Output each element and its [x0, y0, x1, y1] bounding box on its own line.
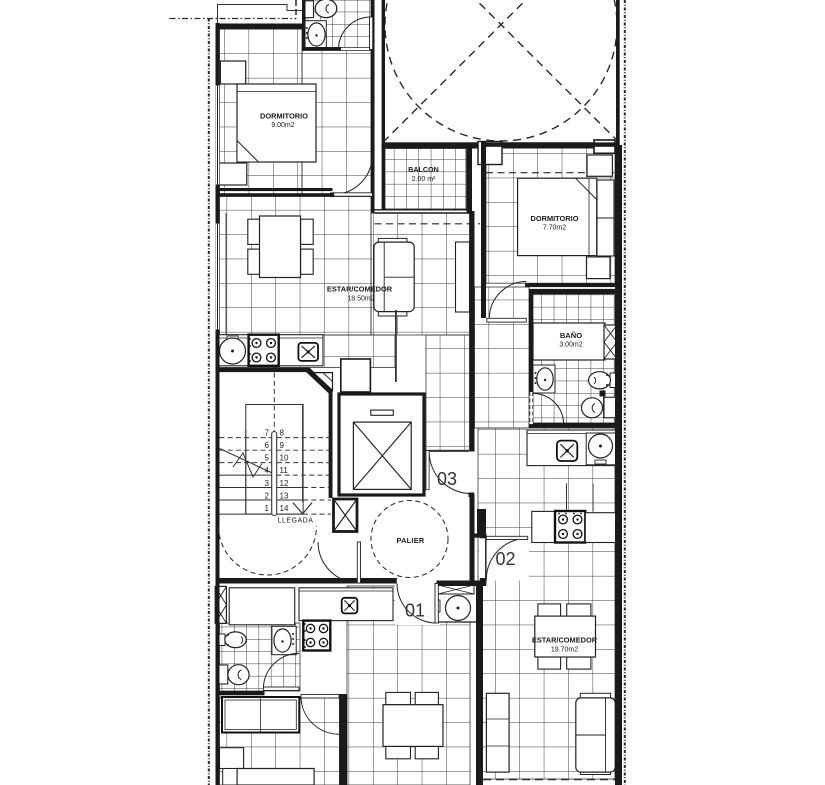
svg-text:ESTAR/COMEDOR: ESTAR/COMEDOR [327, 285, 393, 294]
svg-text:BALCON: BALCON [408, 165, 439, 174]
svg-text:LLEGADA: LLEGADA [278, 518, 314, 525]
svg-text:11: 11 [280, 466, 289, 475]
svg-text:BAÑO: BAÑO [560, 331, 582, 340]
svg-text:19.70m2: 19.70m2 [551, 647, 578, 654]
svg-text:6: 6 [265, 441, 270, 450]
svg-text:2.00 m²: 2.00 m² [412, 176, 436, 183]
svg-text:03: 03 [437, 469, 457, 489]
svg-text:18.50m2: 18.50m2 [347, 296, 374, 303]
svg-text:9.00m2: 9.00m2 [271, 122, 294, 129]
svg-text:8: 8 [280, 429, 285, 438]
svg-text:7.70m2: 7.70m2 [543, 225, 566, 232]
svg-text:7: 7 [265, 429, 270, 438]
svg-text:12: 12 [280, 479, 289, 488]
svg-text:DORMITORIO: DORMITORIO [260, 112, 308, 121]
svg-text:3.00m2: 3.00m2 [559, 342, 582, 349]
svg-text:14: 14 [280, 504, 289, 513]
svg-text:3: 3 [265, 479, 270, 488]
svg-text:2: 2 [265, 491, 270, 500]
svg-text:4: 4 [265, 466, 270, 475]
svg-text:9: 9 [280, 441, 285, 450]
svg-text:5: 5 [265, 454, 270, 463]
svg-text:ESTAR/COMEDOR: ESTAR/COMEDOR [532, 636, 598, 645]
svg-text:1: 1 [265, 504, 270, 513]
svg-text:02: 02 [495, 549, 515, 569]
svg-text:DORMITORIO: DORMITORIO [531, 214, 579, 223]
svg-text:01: 01 [405, 601, 425, 621]
svg-text:13: 13 [280, 491, 289, 500]
svg-text:10: 10 [280, 454, 289, 463]
svg-text:PALIER: PALIER [396, 536, 424, 545]
